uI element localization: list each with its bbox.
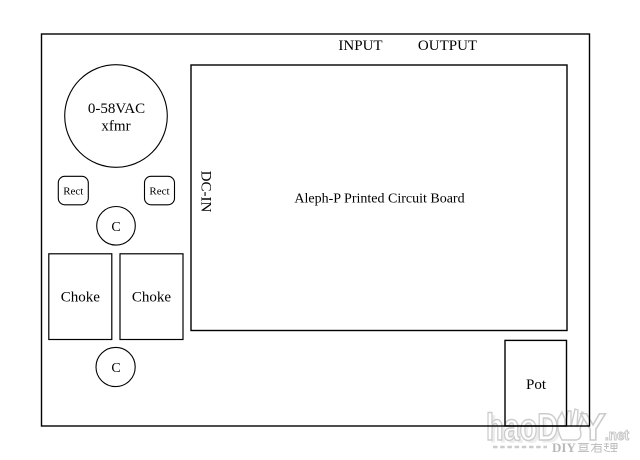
svg-text:DC-IN: DC-IN [198,171,214,213]
svg-text:INPUT: INPUT [338,38,382,54]
svg-text:0-58VAC: 0-58VAC [88,101,145,117]
svg-text:C: C [111,220,120,235]
svg-text:haoD: haoD [486,407,558,449]
svg-text:Pot: Pot [526,377,547,393]
svg-text:Y: Y [580,407,606,449]
svg-text:Choke: Choke [61,290,101,306]
svg-text:Aleph-P Printed Circuit Board: Aleph-P Printed Circuit Board [294,192,464,207]
svg-text:C: C [111,361,120,376]
svg-text:Rect: Rect [63,186,83,198]
svg-text:xfmr: xfmr [101,119,130,135]
svg-text:.net: .net [605,427,629,444]
svg-text:Rect: Rect [149,186,169,198]
svg-text:DIY: DIY [552,440,576,455]
svg-text:OUTPUT: OUTPUT [418,38,477,54]
svg-text:Choke: Choke [132,290,172,306]
